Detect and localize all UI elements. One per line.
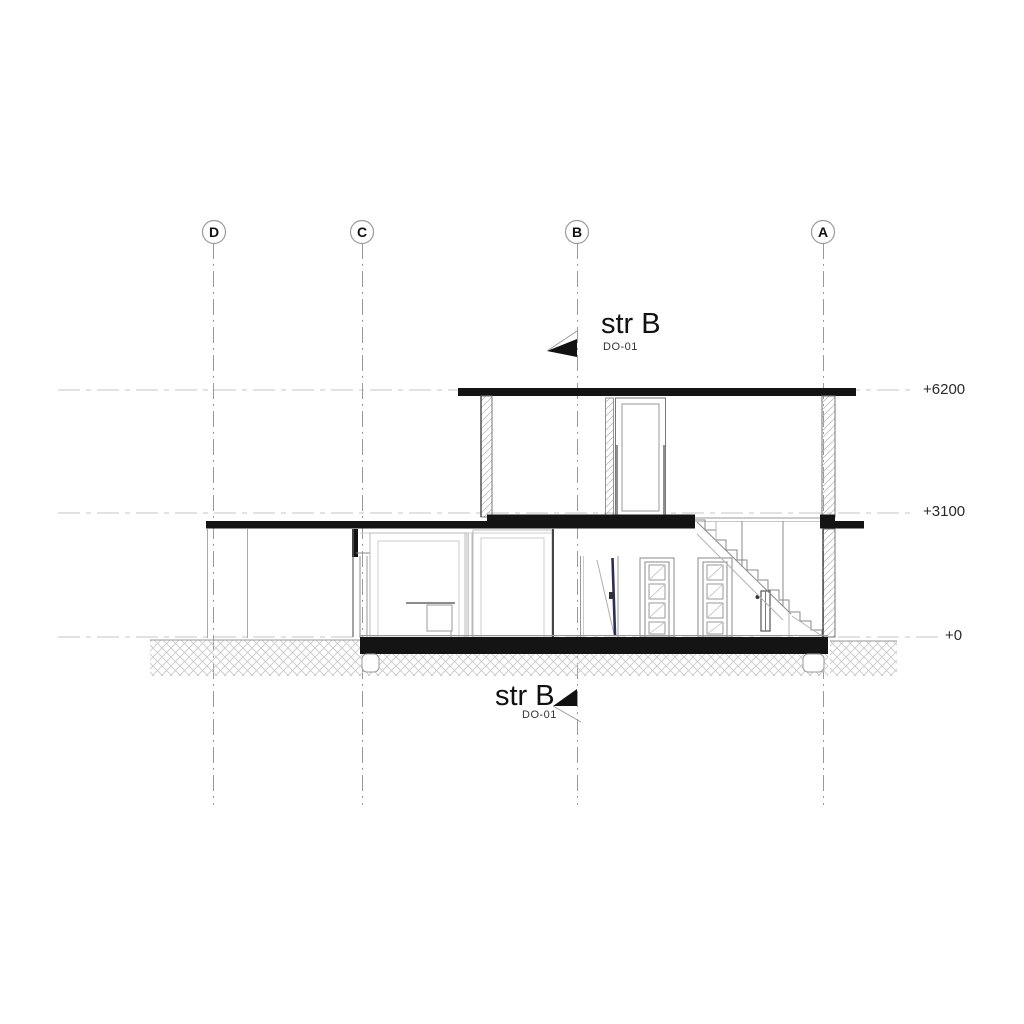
second-floor-slab-right-block: [820, 515, 835, 529]
grid-bubble-label-c: C: [349, 225, 375, 239]
section-arrow-bottom-tail: [553, 706, 581, 722]
door-hinge-handle: [609, 592, 613, 599]
panel-door-1: [640, 558, 674, 637]
drawing-canvas: D C B A +6200 +3100 +0 str B DO-01 str B…: [0, 0, 1024, 1024]
section-marker-top-ref: DO-01: [603, 342, 638, 353]
second-floor-slabs: [206, 515, 864, 529]
radiator: [756, 591, 771, 631]
stair-lower-stringer: [792, 616, 822, 636]
interior-panel-mid: [473, 530, 552, 637]
foundation-left: [362, 654, 379, 672]
panel-door-2: [698, 558, 732, 637]
right-wall: [823, 529, 835, 637]
level-label-3100: +3100: [923, 504, 965, 519]
upper-floor-window: [616, 398, 666, 515]
upper-wall-left: [481, 396, 492, 517]
grid-bubble-label-a: A: [810, 225, 836, 239]
eave-slab-right: [835, 521, 864, 529]
upper-window-inner-frame: [622, 404, 659, 511]
section-marker-bottom-title: str B: [495, 682, 555, 711]
upper-window-jamb: [606, 398, 614, 515]
ground-floor-interior: [360, 529, 553, 637]
interior-panel-mid-inner: [481, 538, 544, 637]
ground-floor-left: [208, 529, 371, 638]
section-marker-top-title: str B: [601, 310, 661, 339]
second-floor-slab-main: [487, 515, 695, 529]
level-label-0: +0: [945, 628, 962, 643]
grid-bubble-label-d: D: [201, 225, 227, 239]
foundation-right: [803, 654, 824, 672]
ground-hatch-right: [830, 641, 897, 676]
ground-hatch-left: [150, 640, 360, 676]
ground-hatch-under-building: [360, 654, 828, 676]
section-arrow-bottom-icon: [553, 689, 577, 706]
level-label-6200: +6200: [923, 382, 965, 397]
desk: [406, 603, 455, 637]
desk-cabinet: [427, 605, 452, 631]
grid-bubbles: [203, 221, 835, 244]
canopy-slab-left: [206, 521, 487, 529]
level-lines: [58, 390, 938, 637]
roof-slab: [458, 388, 856, 396]
open-doorway: [581, 556, 619, 637]
upper-wall-right: [822, 396, 835, 517]
grid-bubble-label-b: B: [564, 225, 590, 239]
section-marker-bottom-ref: DO-01: [522, 710, 557, 721]
section-drawing: [0, 0, 1024, 1024]
floor-slab: [360, 637, 828, 654]
ground-floor-right-wall: [823, 529, 835, 637]
